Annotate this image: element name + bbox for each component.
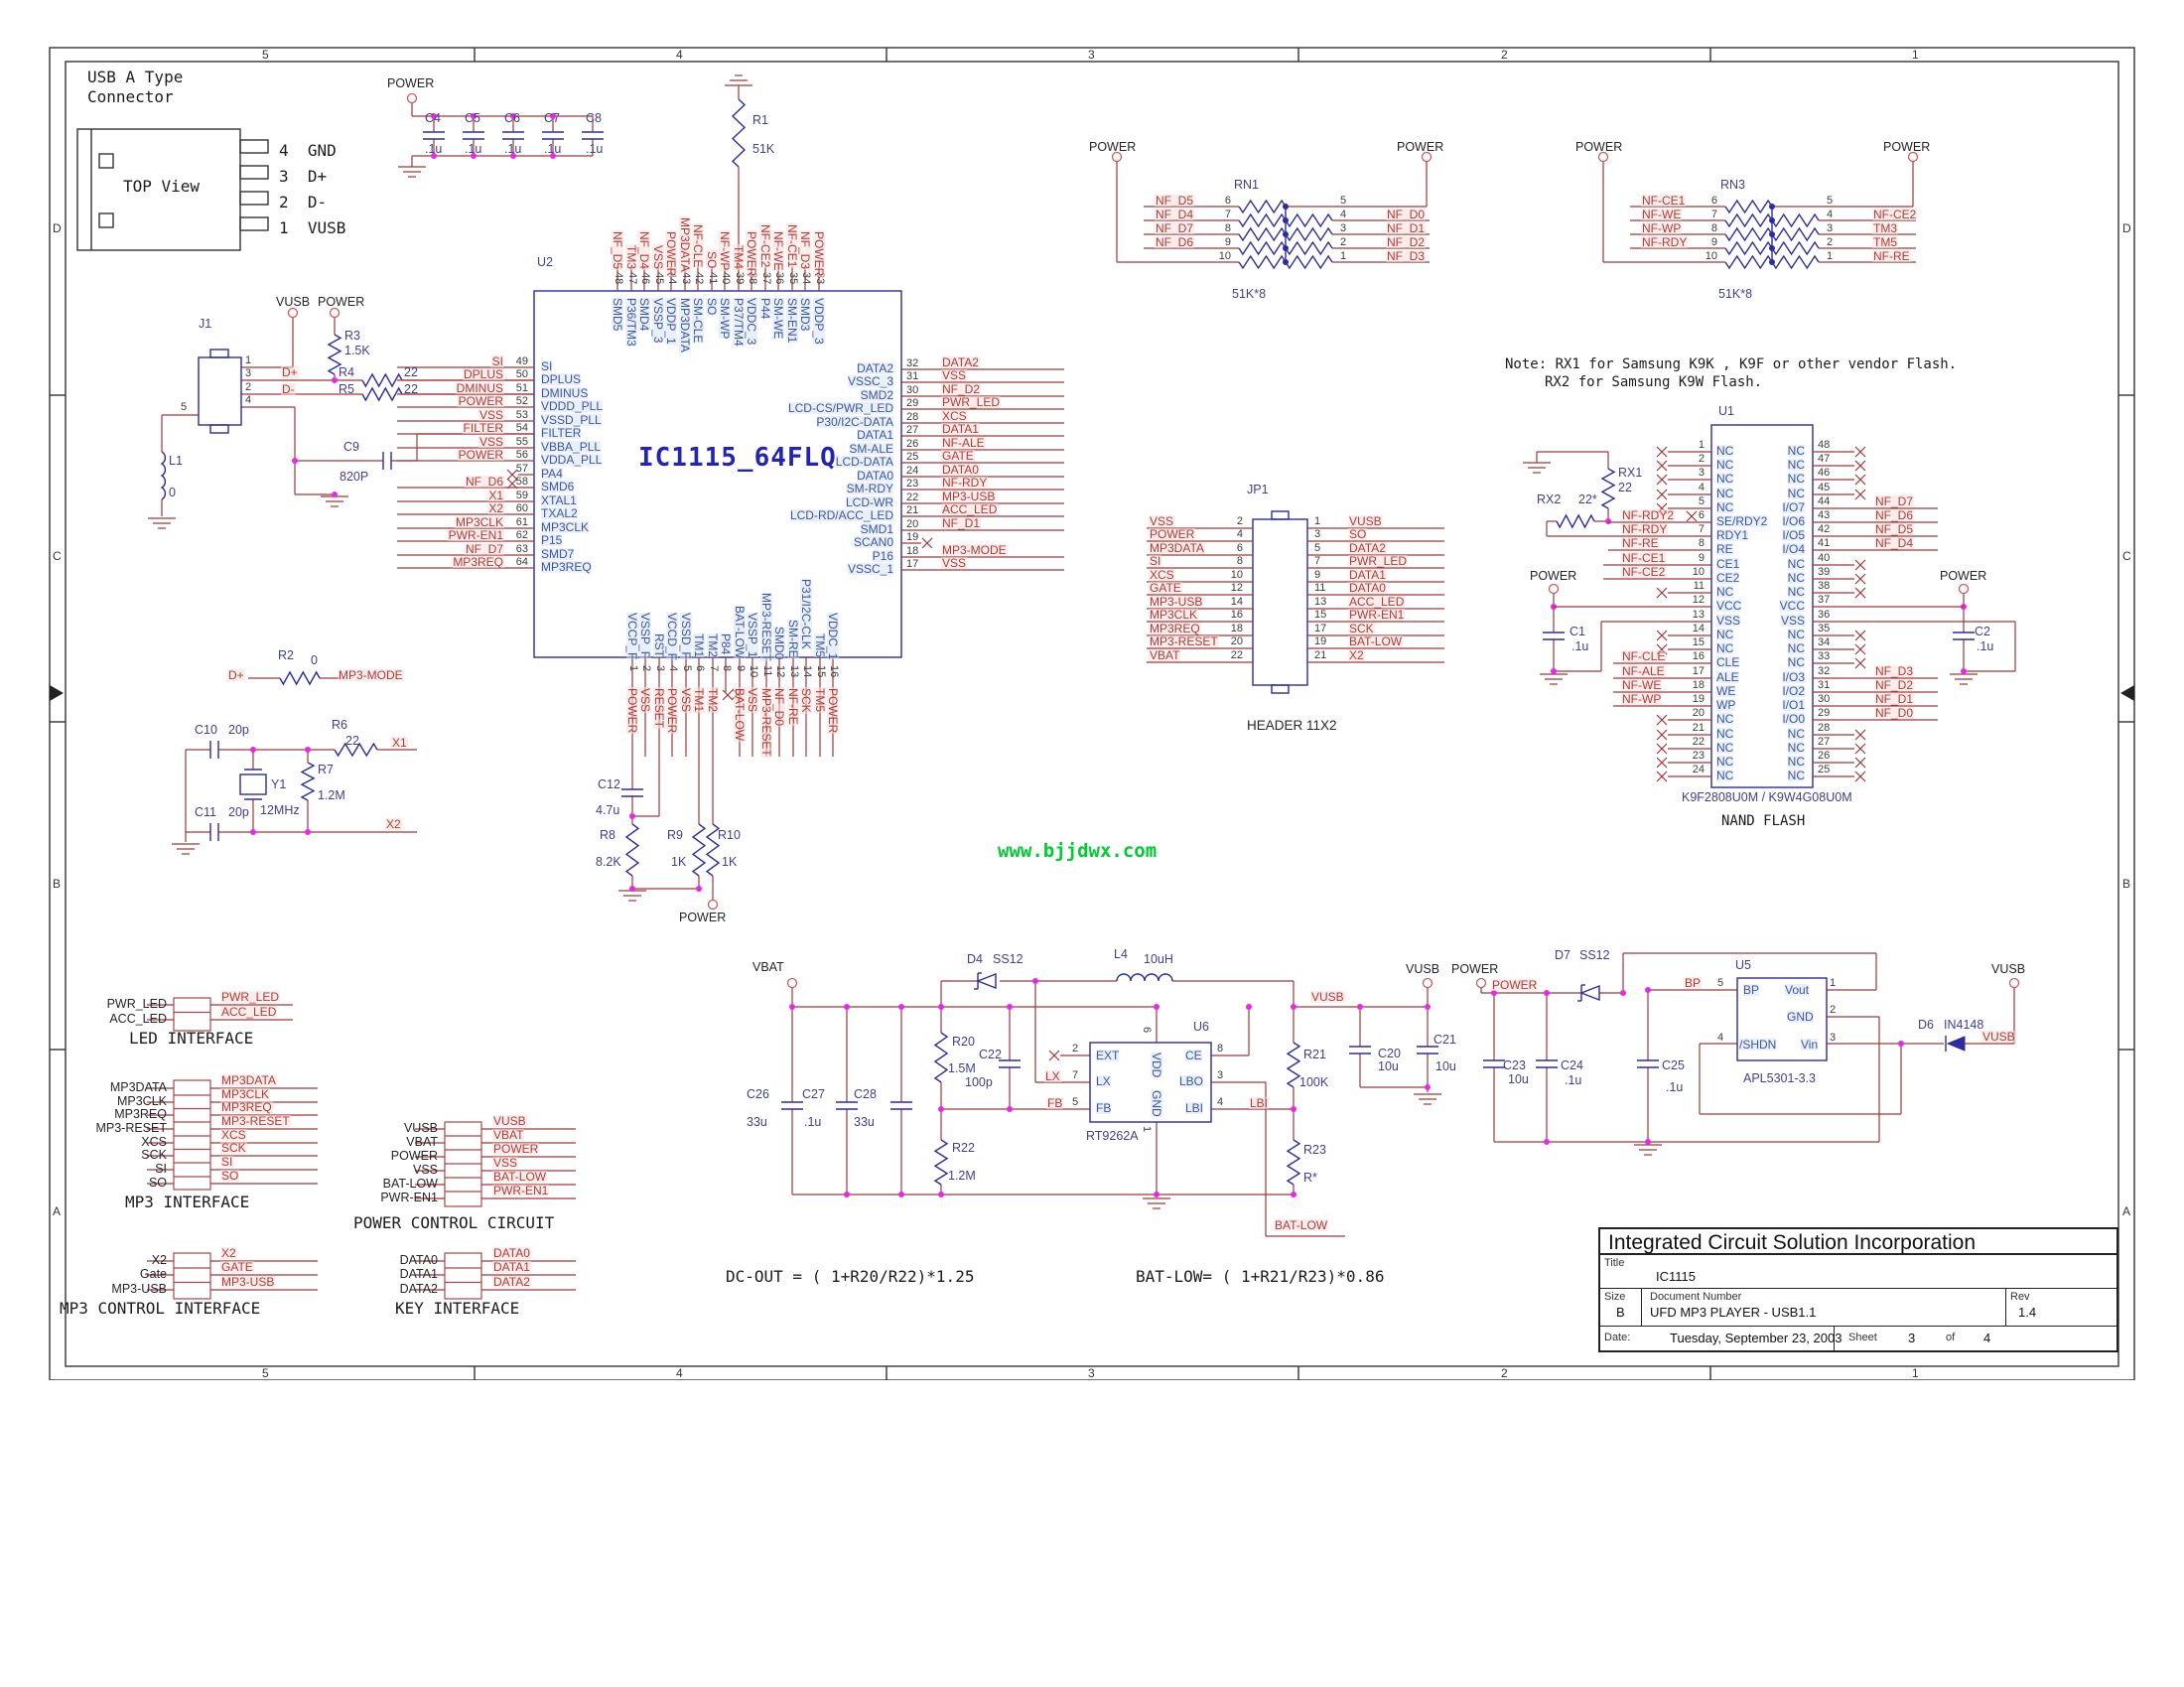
pin-name: NC [1788, 770, 1805, 781]
net-label: NF-RDY [1621, 523, 1668, 535]
pin-number: 13 [788, 665, 799, 677]
pin-name: NC [1788, 656, 1805, 668]
pin-number: 5 [681, 665, 692, 671]
pin-name: SI [541, 360, 552, 372]
pin-number: 4 [667, 665, 678, 671]
signal-label: MP3REQ [114, 1108, 167, 1121]
pin-number: 41 [707, 272, 718, 284]
net-label: DATA0 [492, 1247, 531, 1259]
pin-number: 47 [626, 272, 637, 284]
pin-number: 8 [721, 665, 732, 671]
component-ref: SS12 [993, 953, 1024, 966]
net-label: NF_D0 [1874, 707, 1914, 719]
pin-number: 12 [774, 665, 785, 677]
pin-number: 3 [245, 368, 251, 379]
net-label: NF_D7 [1874, 495, 1914, 507]
doc-label: Document Number [1650, 1291, 1741, 1303]
frame-index: 5 [262, 1367, 269, 1379]
net-label: MP3-USB [941, 491, 996, 502]
net-label: TM5 [1872, 236, 1898, 248]
pin-number: 36 [773, 272, 784, 284]
component-ref: R3 [344, 330, 360, 343]
component-value: 820P [340, 471, 368, 484]
power-terminal-label: POWER [1089, 141, 1136, 154]
frame-index: 2 [1501, 1367, 1508, 1379]
component-value: .1u [504, 143, 521, 156]
pin-name: VSSD_PLL [541, 414, 602, 426]
component-ref: C27 [802, 1088, 825, 1101]
net-label: MP3-RESET [1149, 635, 1219, 647]
net-label: NF_D6 [1874, 509, 1914, 521]
pin-number: 30 [1818, 694, 1830, 705]
component-ref: IN4148 [1944, 1019, 1983, 1032]
pin-name: P31/I2C-CLK [800, 579, 812, 649]
net-label: NF_D5 [1874, 523, 1914, 535]
pin-number: 6 [1699, 510, 1705, 521]
component-value: 51K [752, 143, 774, 156]
net-label: PWR-EN1 [492, 1185, 549, 1196]
net-label: MP3DATA [220, 1074, 277, 1086]
net-label: POWER [626, 687, 638, 734]
power-terminal-label: POWER [1451, 963, 1498, 976]
net-label: POWER [492, 1143, 539, 1155]
pin-number: 45 [653, 272, 664, 284]
of-label: of [1946, 1332, 1955, 1343]
pin-number: 6 [1225, 196, 1231, 207]
net-label: MP3REQ [452, 556, 504, 568]
net-label: NF-RDY2 [1621, 509, 1675, 521]
pin-name: GND [1787, 1011, 1814, 1023]
pin-number: 12 [1693, 595, 1705, 606]
pin-number: 48 [1818, 440, 1830, 451]
signal-label: PWR-EN1 [380, 1192, 438, 1204]
component-ref: SS12 [1579, 949, 1610, 962]
net-label: NF-CE1 [1641, 195, 1686, 207]
net-label: PWR_LED [941, 396, 1001, 408]
pin-name: NC [1716, 728, 1733, 740]
pin-number: 7 [1711, 210, 1717, 220]
net-label: X1 [391, 737, 408, 749]
component-ref: R8 [600, 829, 615, 842]
net-label: SCK [220, 1142, 247, 1154]
pin-name: BAT-LOW [734, 606, 746, 658]
signal-label: MP3-USB [111, 1283, 167, 1296]
pin-number: 1 [1699, 440, 1705, 451]
pin-name: VSSD_F [680, 613, 692, 659]
net-label: MP3REQ [1149, 623, 1201, 634]
component-ref: U6 [1193, 1021, 1209, 1034]
pin-number: 6 [694, 665, 705, 671]
net-label: ACC_LED [941, 503, 998, 515]
pin-number: 4 [1217, 1097, 1223, 1108]
net-label: VUSB [1310, 991, 1345, 1003]
pin-number: 2 [1830, 1005, 1836, 1016]
pin-number: 42 [1818, 524, 1830, 535]
pin-name: RST [653, 633, 665, 657]
pin-name: WP [1716, 699, 1735, 711]
pin-name: NC [1788, 558, 1805, 570]
pin-number: 7 [1072, 1070, 1078, 1081]
date-label: Date: [1604, 1332, 1630, 1343]
net-label: BP [1684, 977, 1702, 989]
net-label: DATA1 [492, 1261, 531, 1273]
pin-number: 18 [1693, 680, 1705, 691]
size-label: Size [1604, 1291, 1625, 1303]
net-label: NF_D0 [773, 687, 785, 727]
net-label: D+ [227, 669, 245, 681]
annotation: NAND FLASH [1721, 814, 1805, 828]
pin-number: 4 [1827, 210, 1833, 220]
net-label: NF-CLE [692, 223, 704, 268]
title-row: Title IC1115 [1600, 1255, 2116, 1289]
component-value: 10u [1508, 1073, 1529, 1086]
net-label: X2 [1348, 649, 1365, 661]
pin-number: 24 [906, 466, 918, 477]
component-ref: R9 [667, 829, 683, 842]
pin-number: 46 [639, 272, 650, 284]
signal-label: MP3CLK [117, 1095, 167, 1108]
net-label: MP3-USB [1149, 596, 1203, 608]
pin-number: 22 [1231, 650, 1243, 661]
signal-label: MP3-RESET [95, 1122, 167, 1135]
pin-name: I/O3 [1782, 671, 1805, 683]
net-label: NF-RE [787, 687, 799, 726]
pin-number: 7 [1225, 210, 1231, 220]
signal-label: PWR_LED [107, 998, 167, 1011]
pin-number: 19 [1693, 694, 1705, 705]
pin-number: 10 [748, 665, 758, 677]
net-label: NF_D7 [1155, 222, 1194, 234]
pin-number: 2 [1827, 237, 1833, 248]
pin-number: 21 [906, 505, 918, 516]
power-terminal-label: POWER [1575, 141, 1622, 154]
pin-number: 3 [1827, 223, 1833, 234]
section-title: MP3 INTERFACE [125, 1195, 249, 1210]
power-terminal-label: POWER [387, 77, 434, 90]
net-label: PWR-EN1 [448, 529, 504, 541]
net-label: NF-RE [1621, 537, 1660, 549]
section-title: 3 D+ [279, 169, 327, 185]
component-ref: RX2 [1537, 493, 1561, 506]
pin-name: SM-CLE [692, 298, 704, 343]
net-label: NF_D1 [941, 517, 981, 529]
net-label: VUSB [1348, 515, 1383, 527]
net-label: NF_D2 [1874, 679, 1914, 691]
net-label: TM3 [625, 244, 637, 270]
component-value: 20p [228, 806, 249, 819]
pin-number: 26 [1818, 751, 1830, 762]
section-title: DC-OUT = ( 1+R20/R22)*1.25 [726, 1269, 974, 1285]
pin-number: 34 [800, 272, 811, 284]
pin-name: TM5 [814, 633, 826, 657]
component-value: .1u [1977, 640, 1993, 653]
net-label: DATA1 [1348, 569, 1387, 581]
frame-index: 3 [1088, 1367, 1095, 1379]
pin-name: VDDA_PLL [541, 454, 602, 466]
net-label: PWR_LED [220, 991, 280, 1003]
component-ref: Y1 [271, 778, 286, 791]
component-ref: C22 [979, 1049, 1002, 1061]
net-label: VSS [492, 1157, 518, 1169]
pin-number: 12 [1231, 583, 1243, 594]
pin-name: NC [1716, 770, 1733, 781]
pin-number: 29 [1818, 708, 1830, 719]
pin-name: SO [706, 298, 718, 315]
pin-number: 34 [1818, 637, 1830, 648]
pin-number: 37 [1818, 595, 1830, 606]
pin-number: 19 [1314, 636, 1326, 647]
pin-name: VCC [1716, 600, 1741, 612]
net-label: MP3DATA [679, 216, 691, 273]
component-value: .1u [425, 143, 442, 156]
pin-name: VDDD_PLL [541, 400, 603, 412]
component-ref: C2 [1975, 626, 1990, 638]
component-ref: R4 [339, 366, 354, 379]
component-ref: C28 [854, 1088, 877, 1101]
connector-caption: HEADER 11X2 [1247, 719, 1337, 733]
pin-name: NC [1716, 586, 1733, 598]
pin-name: SMD4 [638, 298, 650, 331]
pin-number: 15 [1314, 610, 1326, 621]
net-label: LBI [1249, 1097, 1269, 1109]
net-label: POWER [827, 687, 839, 734]
pin-number: 42 [693, 272, 704, 284]
pin-name: VDDC_1 [827, 613, 839, 659]
component-value: 33u [854, 1116, 875, 1129]
pin-name: WE [1716, 685, 1735, 697]
frame-index: 5 [262, 49, 269, 61]
component-value: 51K*8 [1718, 288, 1752, 301]
pin-number: 31 [1818, 680, 1830, 691]
pin-name: Vin [1801, 1039, 1818, 1051]
pin-name: NC [1716, 629, 1733, 640]
pin-number: 47 [1818, 454, 1830, 465]
net-label: NF-CE2 [1621, 566, 1666, 578]
net-label: MP3CLK [455, 516, 504, 528]
pin-name: NC [1788, 728, 1805, 740]
net-label: MP3DATA [1149, 542, 1205, 554]
annotation: Note: RX1 for Samsung K9K , K9F or other… [1505, 357, 1957, 371]
frame-index: A [53, 1205, 61, 1217]
pin-number: 48 [613, 272, 623, 284]
sheet-label: Sheet [1848, 1332, 1877, 1343]
frame-index: 4 [676, 1367, 683, 1379]
annotation: RX2 for Samsung K9W Flash. [1545, 375, 1762, 389]
pin-number: 14 [801, 665, 812, 677]
pin-name: VDDP_3 [813, 298, 825, 345]
signal-label: MP3DATA [110, 1081, 167, 1094]
pin-number: 10 [1693, 567, 1705, 578]
frame-index: A [2122, 1205, 2130, 1217]
title-block: Integrated Circuit Solution Incorporatio… [1598, 1227, 2118, 1352]
net-label: VSS [941, 557, 967, 569]
net-label: VBAT [492, 1129, 524, 1141]
pin-name: VBBA_PLL [541, 441, 601, 453]
component-ref: C10 [195, 724, 217, 737]
pin-name: NC [1788, 445, 1805, 457]
pin-number: 39 [734, 272, 745, 284]
pin-name: TM2 [707, 633, 719, 657]
pin-number: 11 [1314, 583, 1325, 594]
signal-label: Gate [140, 1268, 167, 1281]
date-row: Date: Tuesday, September 23, 2003 Sheet … [1600, 1327, 2116, 1350]
pin-number: 16 [1231, 610, 1243, 621]
pin-number: 52 [516, 396, 528, 407]
component-value: .1u [1565, 1074, 1581, 1087]
pin-name: VCCD_F [666, 613, 678, 660]
component-ref: JP1 [1247, 484, 1269, 496]
net-label: NF_D6 [1155, 236, 1194, 248]
pin-name: NC [1716, 756, 1733, 768]
pin-number: 43 [1818, 510, 1830, 521]
net-label: NF-WE [1621, 679, 1662, 691]
pin-name: I/O6 [1782, 515, 1805, 527]
component-value: 10u [1378, 1060, 1399, 1073]
net-label: NF-RDY [941, 477, 988, 489]
pin-number: 36 [1818, 610, 1830, 621]
net-label: DATA2 [941, 356, 980, 368]
pin-name: CE [1185, 1050, 1202, 1061]
component-ref: R22 [952, 1142, 975, 1155]
pin-number: 21 [1314, 650, 1326, 661]
section-title: USB A Type [87, 70, 183, 85]
signal-label: VSS [413, 1164, 438, 1177]
component-ref: C25 [1662, 1059, 1685, 1072]
chip-part-number: IC1115_64FLQ [638, 445, 837, 471]
component-ref: C21 [1433, 1034, 1456, 1047]
pin-name: VDDC_3 [746, 298, 757, 345]
net-label: X2 [487, 502, 504, 514]
signal-label: DATA1 [400, 1268, 438, 1281]
component-ref: C6 [504, 112, 520, 125]
pin-name: VCC [1780, 600, 1805, 612]
net-label: GATE [1149, 582, 1182, 594]
pin-name: VSSP_3 [652, 298, 664, 343]
pin-number: 21 [1693, 723, 1705, 734]
pin-name: VSS [1716, 615, 1740, 627]
pin-number: 1 [627, 665, 638, 671]
net-label: NF_D0 [1386, 209, 1426, 220]
component-ref: R21 [1303, 1049, 1326, 1061]
component-ref: C4 [425, 112, 441, 125]
pin-number: 8 [1237, 556, 1243, 567]
pin-number: 27 [1818, 737, 1830, 748]
pin-number: 20 [1693, 708, 1705, 719]
pin-name: XTAL1 [541, 494, 577, 506]
pin-name: NC [1716, 742, 1733, 754]
power-terminal-label: VUSB [276, 296, 310, 309]
frame-index: 1 [1912, 1367, 1919, 1379]
pin-name: LBO [1179, 1075, 1203, 1087]
section-title: 2 D- [279, 195, 327, 211]
net-label: DATA0 [1348, 582, 1387, 594]
net-label: NF_D1 [1386, 222, 1426, 234]
pin-name: NC [1716, 473, 1733, 485]
pin-number: 63 [516, 544, 528, 555]
component-value: 22 [1618, 482, 1632, 494]
pin-name: NC [1716, 713, 1733, 725]
pin-name: VCCP_F [626, 613, 638, 659]
pin-name: DATA0 [857, 470, 893, 482]
pin-name: LBI [1185, 1102, 1203, 1114]
component-value: .1u [465, 143, 481, 156]
sheet-value: 3 [1908, 1331, 1915, 1345]
pin-number: 16 [828, 665, 839, 677]
power-terminal-label: POWER [1530, 570, 1576, 583]
pin-number: 8 [1217, 1044, 1223, 1054]
pin-number: 4 [1717, 1033, 1723, 1044]
pin-number: 9 [735, 665, 746, 671]
component-ref: D6 [1918, 1019, 1934, 1032]
pin-number: 49 [516, 356, 528, 367]
pin-number: 3 [654, 665, 665, 671]
pin-number: 3 [1340, 223, 1346, 234]
pin-name: CE2 [1716, 572, 1739, 584]
net-label: NF-CE1 [786, 223, 798, 268]
net-label: SO [220, 1170, 239, 1182]
pin-number: 39 [1818, 567, 1830, 578]
pin-number: 28 [1818, 723, 1830, 734]
frame-index: D [2122, 222, 2131, 234]
pin-number: 11 [761, 665, 772, 676]
net-label: NF-ALE [1621, 665, 1666, 677]
signal-label: DATA0 [400, 1254, 438, 1267]
component-ref: APL5301-3.3 [1743, 1072, 1816, 1085]
pin-name: MP3REQ [541, 561, 592, 573]
pin-name: VSSC_1 [848, 563, 893, 575]
net-label: MP3-USB [220, 1276, 275, 1288]
power-terminal-label: VBAT [752, 961, 784, 974]
pin-number: 18 [906, 546, 918, 557]
pin-number: 2 [640, 665, 651, 671]
pin-number: 8 [1225, 223, 1231, 234]
net-label: FB [1046, 1097, 1063, 1109]
net-label: NF_D5 [1155, 195, 1194, 207]
pin-number: 54 [516, 423, 528, 434]
component-ref: C11 [195, 806, 216, 819]
pin-name: I/O1 [1782, 699, 1805, 711]
component-value: 1K [722, 856, 737, 869]
signal-label: VUSB [404, 1122, 438, 1135]
component-ref: RT9262A [1086, 1130, 1139, 1143]
pin-number: 20 [1231, 636, 1243, 647]
component-ref: C20 [1378, 1048, 1401, 1060]
component-ref: D7 [1555, 949, 1570, 962]
doc-number: UFD MP3 PLAYER - USB1.1 [1650, 1305, 1816, 1320]
net-label: X1 [487, 490, 504, 501]
component-value: 20p [228, 724, 249, 737]
pin-number: 3 [1699, 468, 1705, 479]
pin-name: SM-WP [719, 298, 731, 339]
pin-name: P15 [541, 534, 562, 546]
pin-number: 56 [516, 450, 528, 461]
pin-name: NC [1788, 572, 1805, 584]
component-value: .1u [544, 143, 561, 156]
net-label: SI [491, 355, 504, 367]
pin-number: 43 [680, 272, 691, 284]
pin-number: 2 [1237, 516, 1243, 527]
pin-number: 4 [1699, 483, 1705, 493]
component-ref: J1 [199, 318, 211, 331]
pin-number: 30 [906, 385, 918, 396]
pin-number: 5 [1340, 196, 1346, 207]
power-terminal-label: POWER [318, 296, 364, 309]
net-label: NF-CE2 [1872, 209, 1917, 220]
pin-number: 2 [1340, 237, 1346, 248]
component-value: 100K [1299, 1076, 1328, 1089]
sheet-total: 4 [1983, 1331, 1990, 1345]
net-label: BAT-LOW [492, 1171, 547, 1183]
